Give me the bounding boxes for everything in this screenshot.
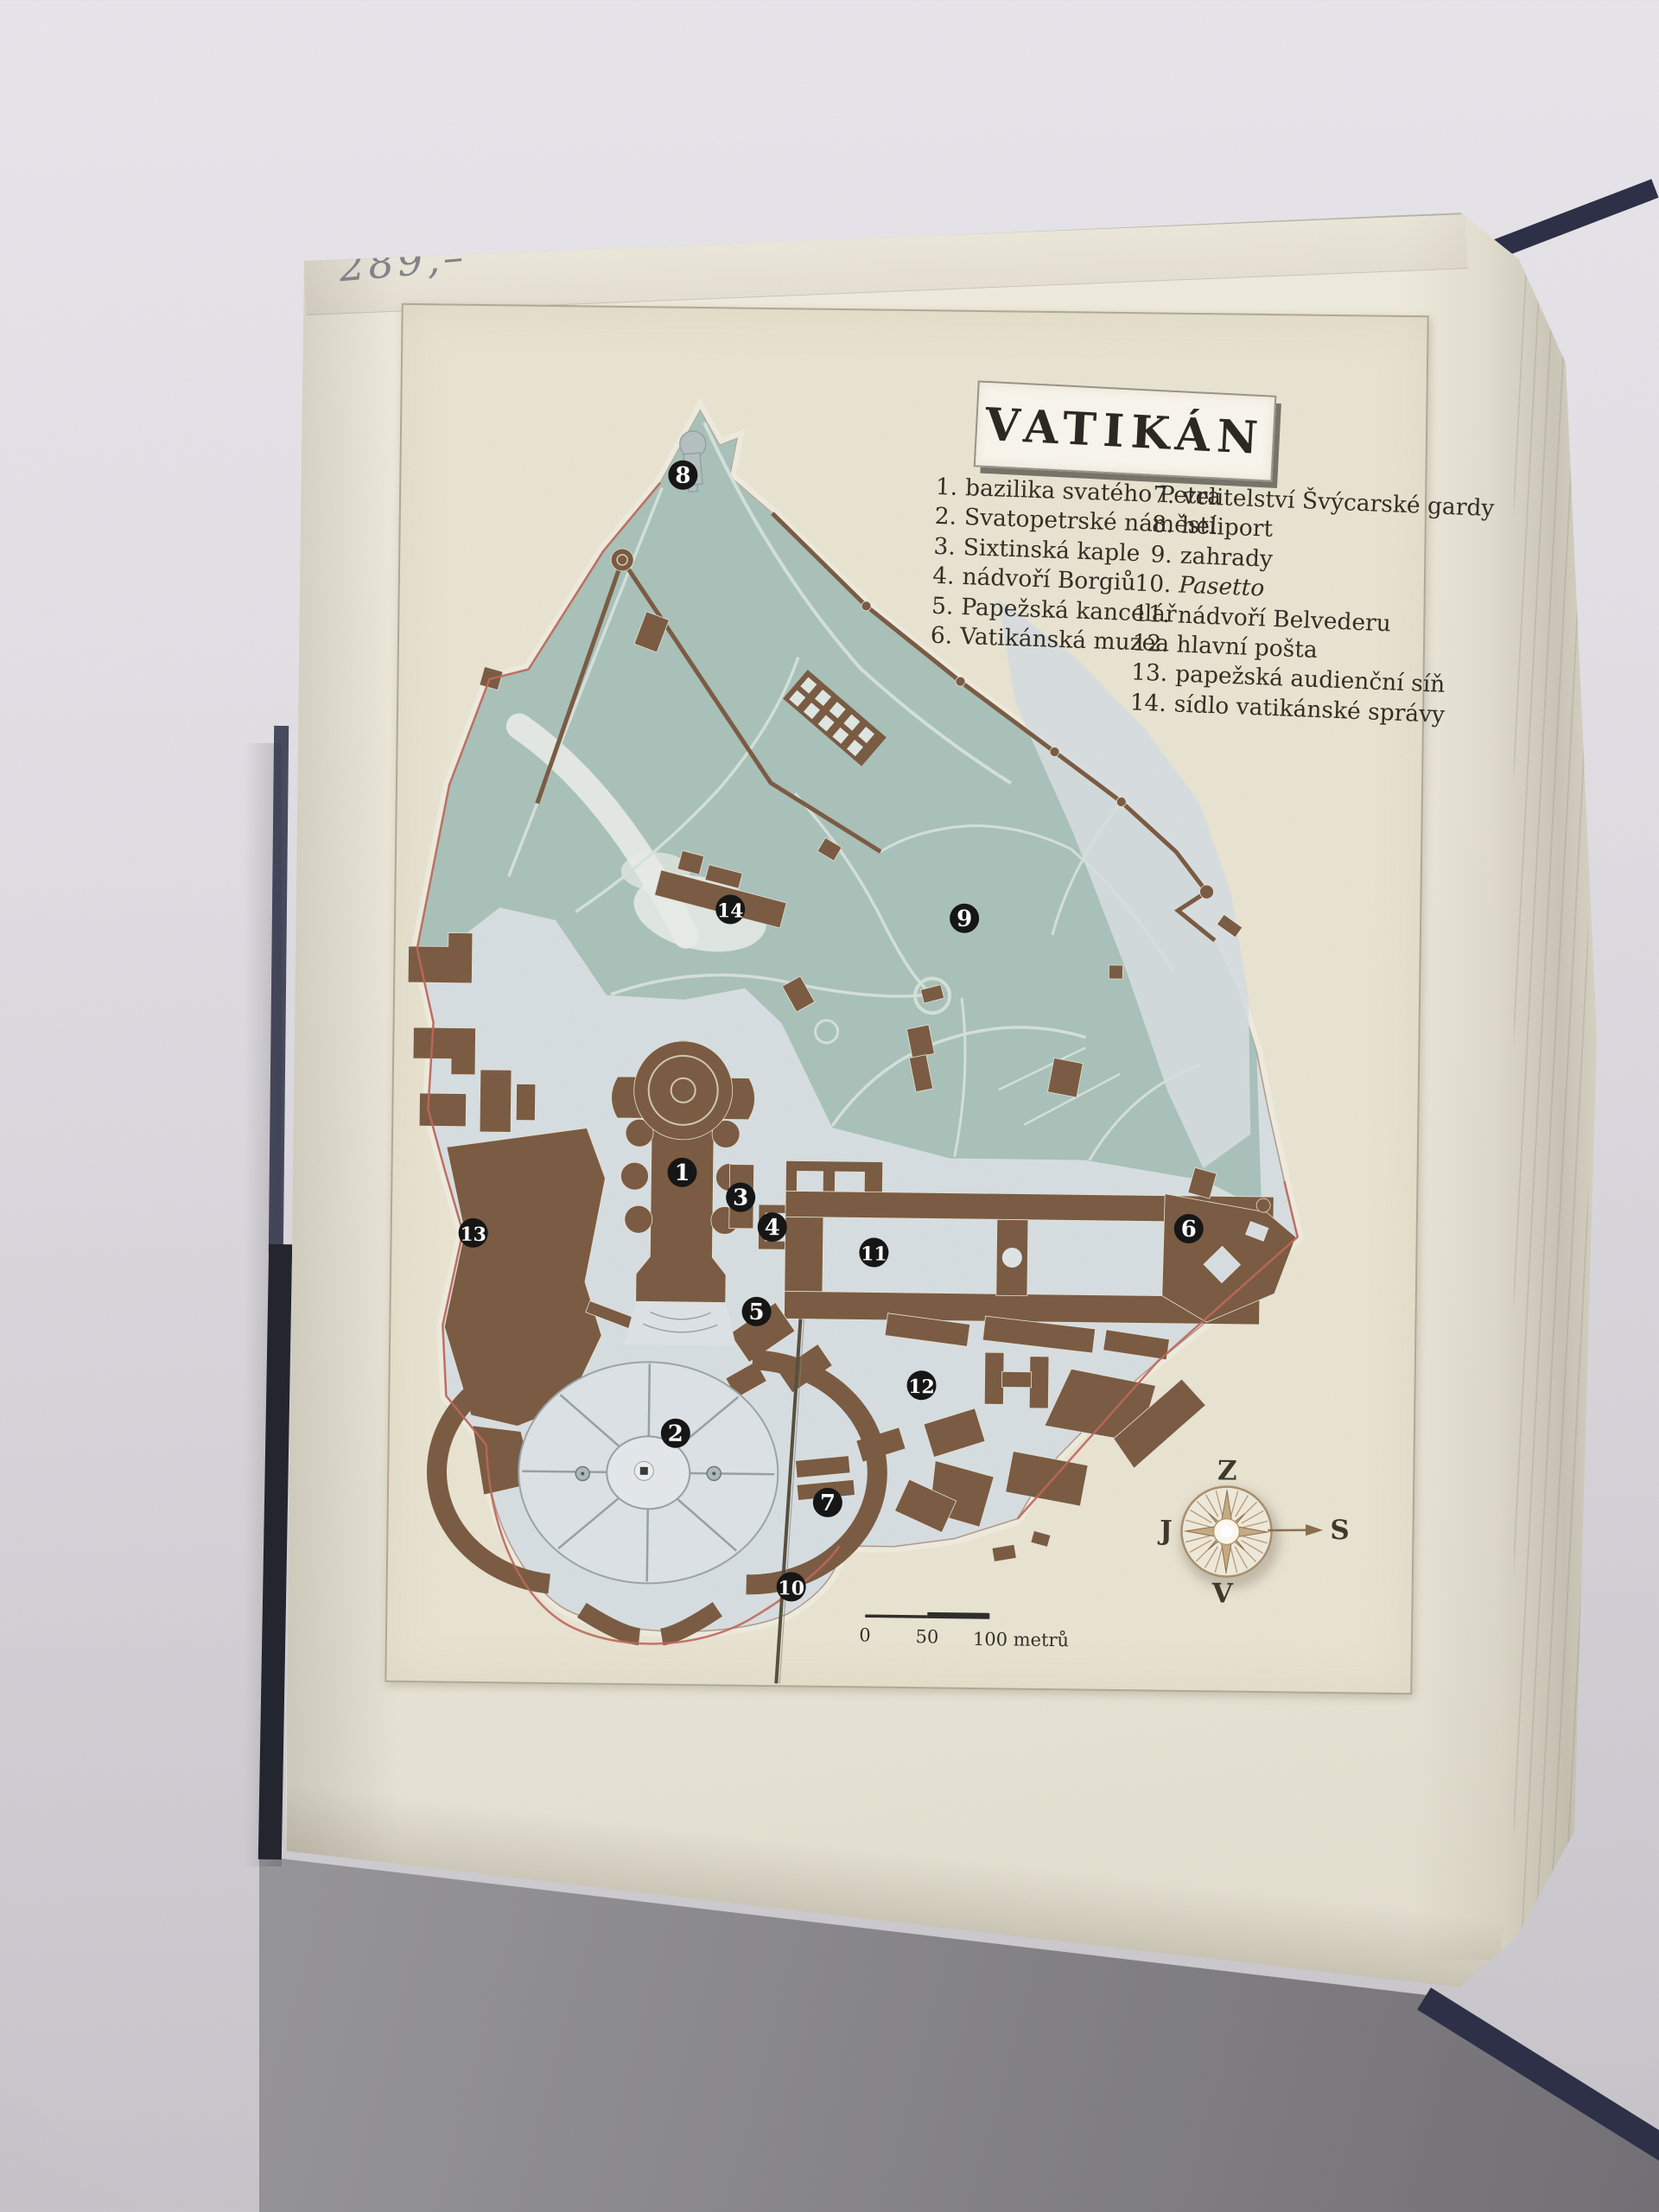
round-tower xyxy=(611,549,633,571)
map-marker-label: 4 xyxy=(765,1215,780,1241)
map-marker-label: 10 xyxy=(778,1577,804,1599)
legend-number: 2. xyxy=(916,502,957,533)
legend-number: 6. xyxy=(912,620,953,652)
legend-number: 4. xyxy=(914,561,955,592)
map-marker-label: 1 xyxy=(674,1160,690,1186)
legend-number: 14. xyxy=(1126,688,1166,719)
legend-number: 11. xyxy=(1129,599,1170,630)
map-marker-label: 9 xyxy=(957,906,972,932)
map-marker-label: 3 xyxy=(733,1185,748,1211)
vatican-map-panel: 0 50 100 metrů Z S J V xyxy=(385,303,1428,1694)
compass-north-label: S xyxy=(1330,1515,1350,1546)
legend-column-right: 7.velitelství Švýcarské gardy8.heliport9… xyxy=(1126,480,1495,732)
scale-0: 0 xyxy=(859,1624,871,1645)
legend-number: 8. xyxy=(1134,510,1174,541)
legend-number: 5. xyxy=(913,591,954,622)
map-title-box: VATIKÁN xyxy=(974,380,1277,481)
legend-number: 1. xyxy=(918,472,958,503)
compass-rose: Z S J V xyxy=(1156,1455,1351,1611)
legend-label: zahrady xyxy=(1179,541,1274,575)
legend-number: 9. xyxy=(1132,539,1173,570)
page-gutter-shading xyxy=(287,242,399,1961)
scale-100: 100 metrů xyxy=(973,1629,1069,1650)
map-marker-label: 14 xyxy=(717,899,744,922)
map-marker-label: 2 xyxy=(668,1421,683,1447)
legend-label: heliport xyxy=(1180,512,1273,545)
legend-label: Pasetto xyxy=(1179,571,1265,604)
map-marker-label: 6 xyxy=(1181,1217,1197,1243)
map-marker-label: 12 xyxy=(908,1376,935,1398)
legend-number: 13. xyxy=(1128,658,1168,690)
map-marker-label: 11 xyxy=(861,1243,887,1265)
legend-number: 12. xyxy=(1128,628,1169,659)
map-marker-label: 5 xyxy=(748,1300,764,1325)
map-marker-label: 7 xyxy=(820,1491,836,1516)
compass-west-label: Z xyxy=(1217,1455,1237,1486)
map-title: VATIKÁN xyxy=(984,397,1266,464)
legend-number: 10. xyxy=(1131,569,1172,601)
legend-number: 7. xyxy=(1135,480,1175,511)
legend-number: 3. xyxy=(915,531,956,563)
compass-south-label: J xyxy=(1157,1516,1173,1547)
scale-bar: 0 50 100 metrů xyxy=(859,1611,1069,1650)
compass-east-label: V xyxy=(1211,1578,1233,1609)
page-stack-edge xyxy=(304,213,1468,315)
map-marker-label: 8 xyxy=(675,463,690,489)
scale-50: 50 xyxy=(915,1626,938,1647)
page-edge-lines xyxy=(1514,225,1588,1953)
map-marker-label: 13 xyxy=(460,1224,486,1246)
